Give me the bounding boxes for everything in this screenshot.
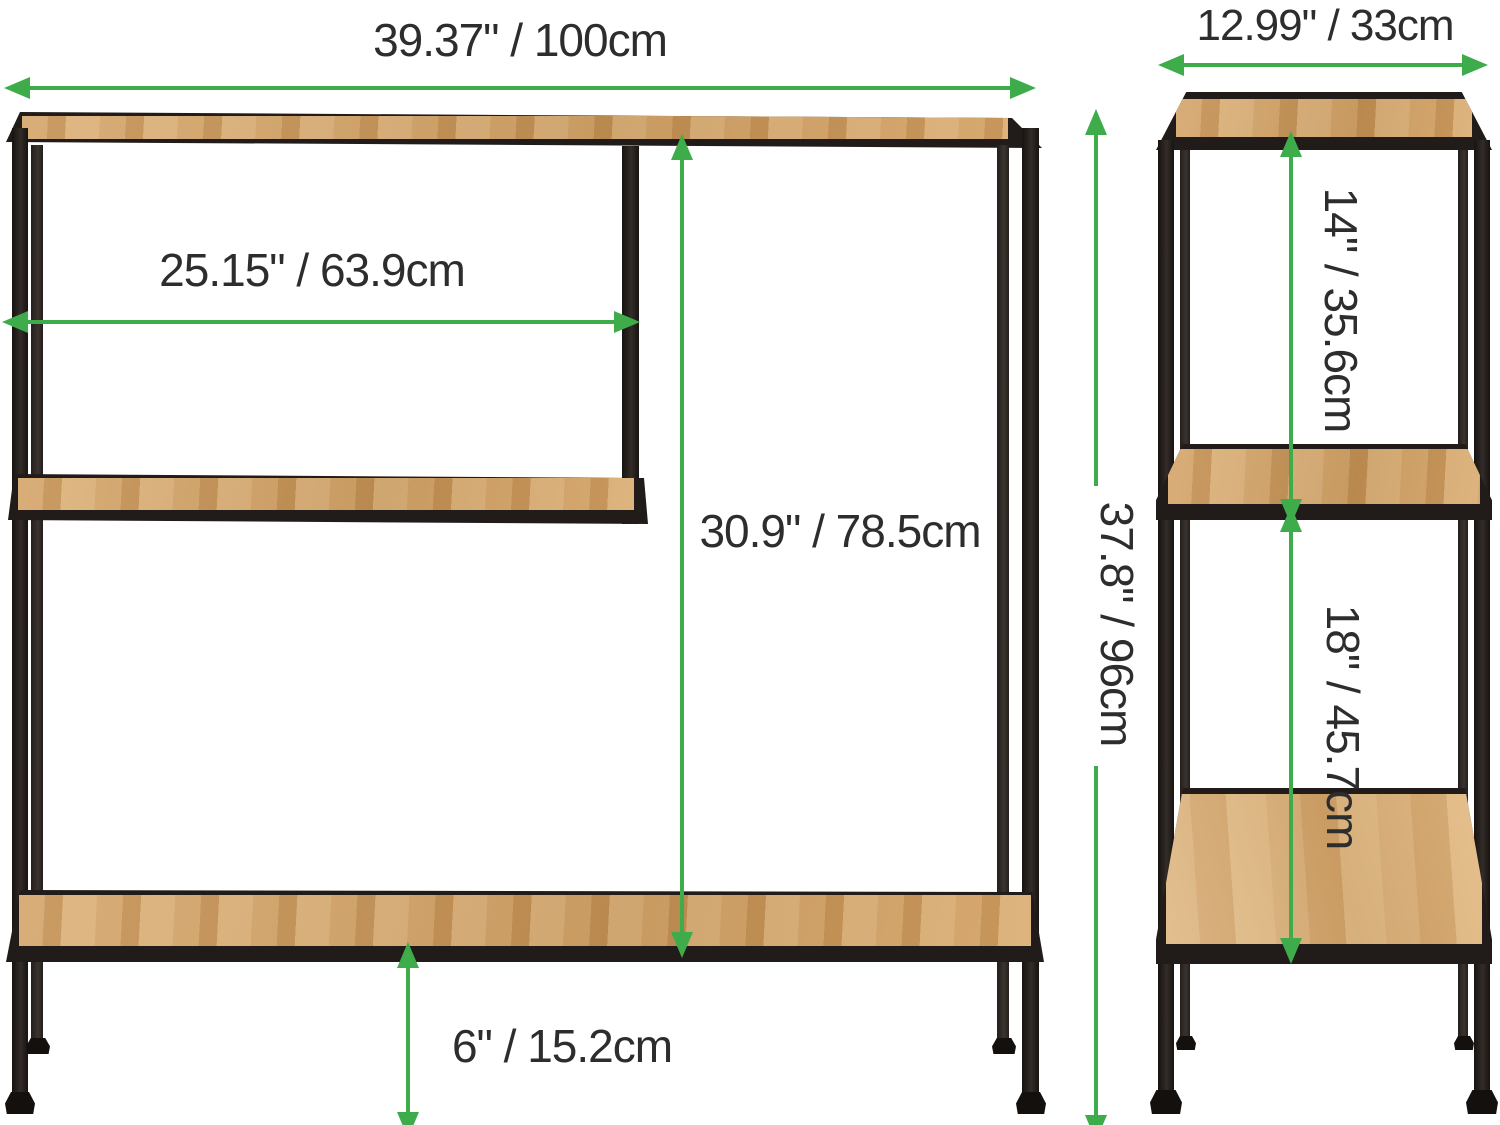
dim-arrow-side-upper-section xyxy=(1289,155,1293,501)
front-foot-left-front xyxy=(5,1092,35,1114)
dim-label-side-depth: 12.99" / 33cm xyxy=(1197,4,1454,48)
dim-label-side-upper-section: 14" / 35.6cm xyxy=(1318,188,1364,433)
front-top-panel-wood xyxy=(22,116,1008,139)
front-foot-left-back xyxy=(26,1038,50,1054)
dim-label-side-lower-section: 18" / 45.7cm xyxy=(1320,605,1366,850)
side-middle-shelf-wood xyxy=(1168,449,1480,504)
front-middle-shelf-wood xyxy=(18,478,634,510)
front-middle-support xyxy=(622,146,639,524)
front-middle-shelf xyxy=(8,474,648,524)
dim-arrow-front-overall-height-top xyxy=(1094,133,1098,486)
front-foot-right-front xyxy=(1016,1092,1046,1114)
side-foot-left-front xyxy=(1150,1090,1182,1114)
front-bottom-shelf-wood xyxy=(19,895,1031,946)
front-top-panel xyxy=(6,110,1042,150)
side-foot-left-back xyxy=(1176,1036,1196,1050)
product-dimension-diagram: 39.37" / 100cm 25.15" / 63.9cm 30.9" / 7… xyxy=(0,0,1500,1125)
side-foot-right-back xyxy=(1454,1036,1474,1050)
dim-label-front-open-height: 30.9" / 78.5cm xyxy=(699,508,980,554)
dim-label-front-shelf-width: 25.15" / 63.9cm xyxy=(159,247,465,293)
dim-arrow-front-width xyxy=(28,86,1012,90)
dim-arrow-front-base-clearance xyxy=(406,966,410,1114)
dim-arrow-front-open-height xyxy=(680,158,684,934)
front-bottom-shelf xyxy=(6,890,1044,962)
dim-label-front-overall-height: 37.8" / 96cm xyxy=(1094,502,1140,747)
side-foot-right-front xyxy=(1466,1090,1498,1114)
front-foot-right-back xyxy=(992,1038,1016,1054)
side-top-panel-wood xyxy=(1176,99,1472,137)
dim-arrow-side-depth xyxy=(1182,63,1464,67)
dim-label-front-base-clearance: 6" / 15.2cm xyxy=(452,1023,672,1069)
dim-label-front-width: 39.37" / 100cm xyxy=(373,17,667,63)
dim-arrow-front-overall-height-bottom xyxy=(1094,766,1098,1117)
side-top-panel xyxy=(1156,92,1492,150)
dim-arrow-front-shelf-width xyxy=(26,320,616,324)
dim-arrow-side-lower-section xyxy=(1289,530,1293,940)
side-middle-shelf xyxy=(1156,444,1492,520)
